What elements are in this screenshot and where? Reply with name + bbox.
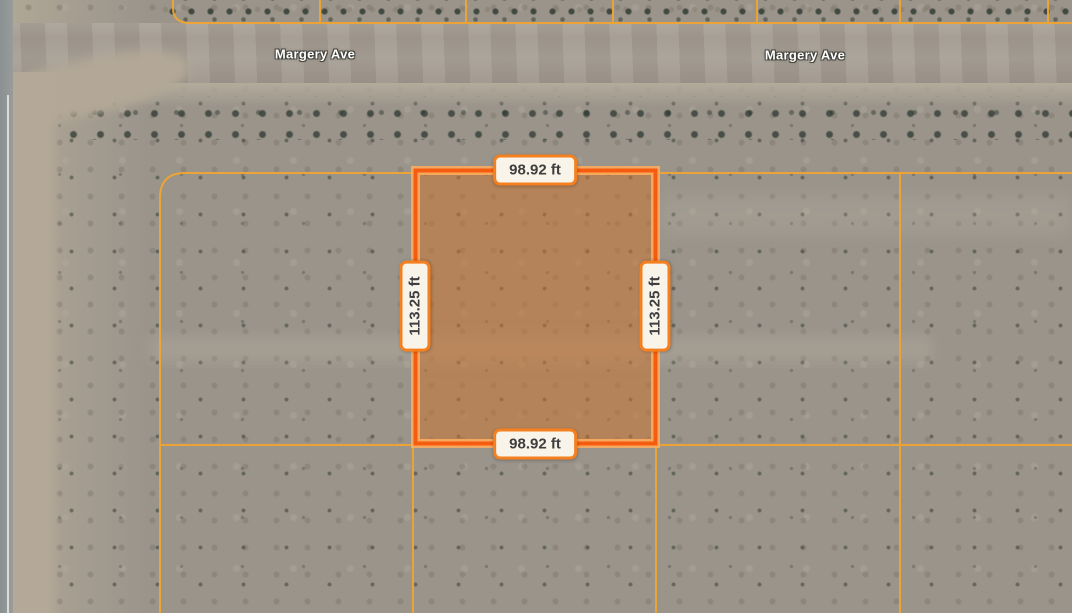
selected-parcel-halo xyxy=(416,171,656,444)
parcel-overlay xyxy=(0,0,1072,613)
selected-parcel[interactable] xyxy=(416,171,656,444)
street-label-margery-ave-west: Margery Ave xyxy=(275,47,355,62)
dimension-label-top: 98.92 ft xyxy=(493,155,577,186)
dimension-label-bottom: 98.92 ft xyxy=(493,429,577,460)
dimension-label-left: 113.25 ft xyxy=(400,260,431,351)
street-label-margery-ave-east: Margery Ave xyxy=(765,48,845,63)
dimension-label-right: 113.25 ft xyxy=(640,260,671,351)
satellite-map[interactable]: Margery Ave Margery Ave 98.92 ft 98.92 f… xyxy=(0,0,1072,613)
